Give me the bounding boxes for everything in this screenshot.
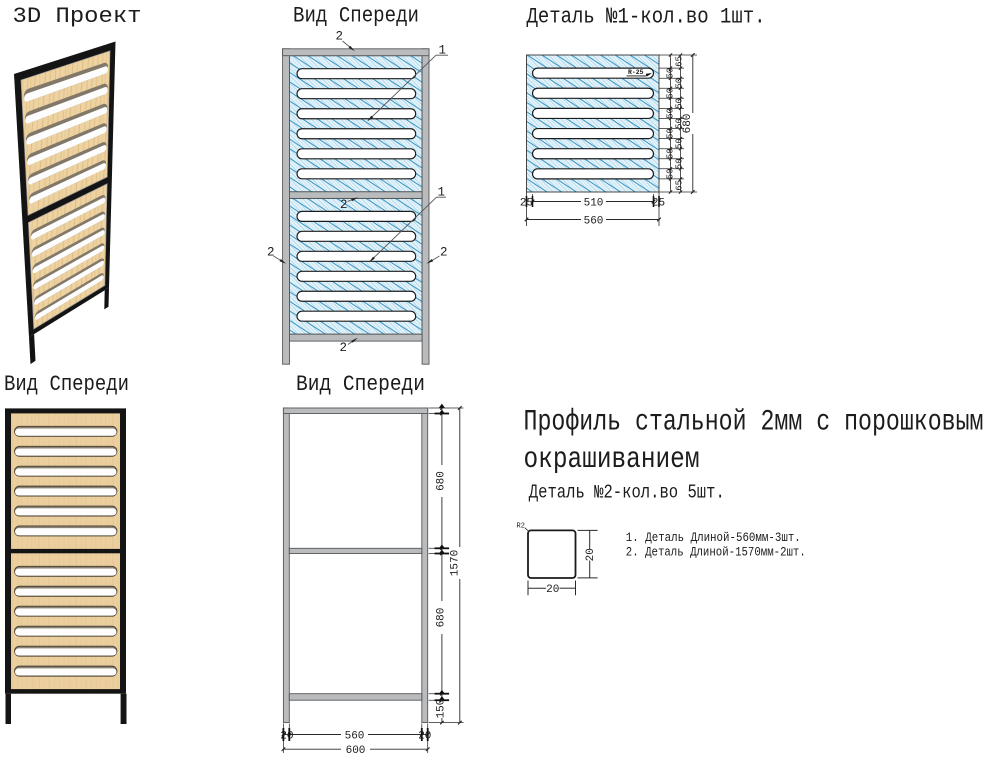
svg-text:20: 20 [280, 731, 293, 743]
svg-text:25: 25 [652, 198, 665, 210]
svg-text:50: 50 [666, 88, 676, 99]
svg-text:65: 65 [675, 56, 685, 67]
svg-text:Деталь №2-кол.во 5шт.: Деталь №2-кол.во 5шт. [529, 481, 725, 503]
svg-text:50: 50 [666, 148, 676, 159]
svg-text:510: 510 [584, 198, 604, 210]
svg-text:2. Деталь Длиной-1570мм-2шт.: 2. Деталь Длиной-1570мм-2шт. [626, 546, 806, 560]
svg-text:560: 560 [345, 731, 365, 743]
svg-text:50: 50 [666, 128, 676, 139]
svg-text:680: 680 [435, 471, 447, 491]
svg-text:Вид Спереди: Вид Спереди [296, 371, 425, 397]
svg-text:2: 2 [340, 198, 348, 212]
svg-text:окрашиванием: окрашиванием [524, 443, 700, 477]
svg-text:20: 20 [418, 731, 431, 743]
svg-text:20: 20 [585, 548, 597, 561]
svg-text:R2: R2 [517, 523, 525, 531]
svg-text:50: 50 [675, 98, 685, 109]
svg-text:560: 560 [584, 216, 604, 228]
svg-text:50: 50 [675, 78, 685, 89]
svg-text:25: 25 [520, 198, 533, 210]
svg-text:680: 680 [435, 608, 447, 628]
svg-text:680: 680 [682, 114, 694, 134]
svg-text:20: 20 [546, 584, 559, 596]
svg-text:50: 50 [675, 138, 685, 149]
svg-text:1570: 1570 [449, 550, 461, 576]
svg-text:50: 50 [666, 108, 676, 119]
svg-text:2: 2 [440, 246, 448, 260]
svg-text:1. Деталь Длиной-560мм-3шт.: 1. Деталь Длиной-560мм-3шт. [626, 531, 801, 545]
svg-text:65: 65 [675, 180, 685, 191]
svg-text:Профиль стальной 2мм с порошко: Профиль стальной 2мм с порошковым [524, 406, 984, 440]
svg-text:Деталь №1-кол.во 1шт.: Деталь №1-кол.во 1шт. [527, 4, 766, 30]
svg-text:150: 150 [435, 699, 447, 719]
svg-text:3D Проект: 3D Проект [13, 3, 142, 29]
svg-text:600: 600 [346, 745, 366, 757]
svg-text:2: 2 [340, 341, 348, 355]
svg-text:50: 50 [675, 158, 685, 169]
svg-text:2: 2 [336, 30, 344, 44]
svg-text:Вид Спереди: Вид Спереди [4, 371, 129, 397]
svg-text:50: 50 [666, 68, 676, 79]
svg-text:2: 2 [267, 246, 275, 260]
svg-text:50: 50 [666, 168, 676, 179]
svg-text:Вид Спереди: Вид Спереди [293, 3, 419, 29]
